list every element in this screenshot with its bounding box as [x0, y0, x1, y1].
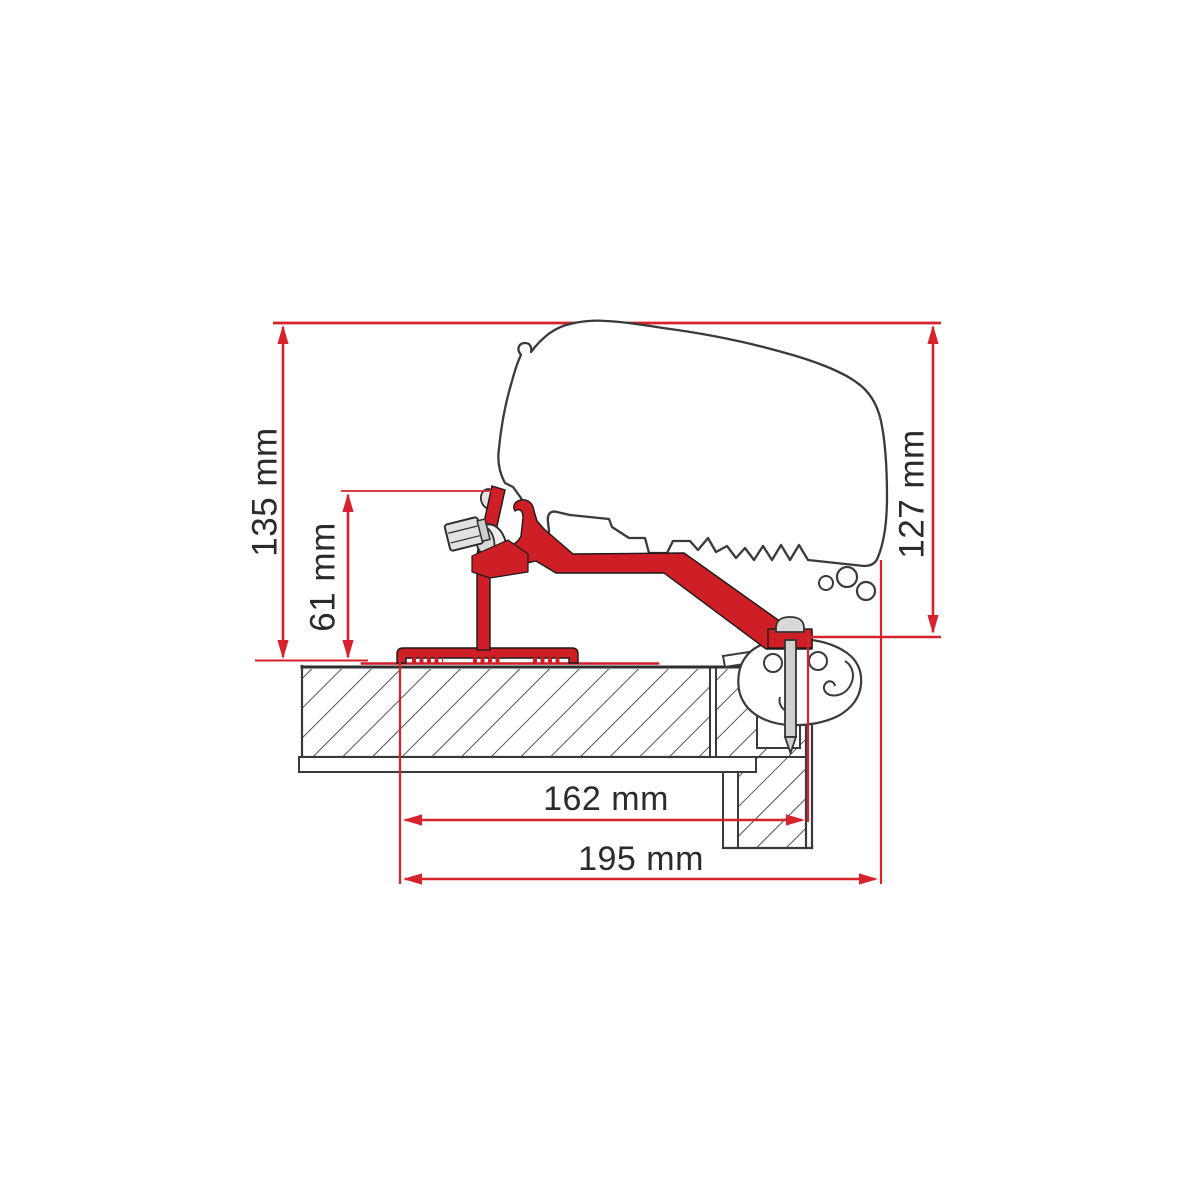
dim-162-label: 162 mm — [543, 780, 669, 818]
dim-135-label: 135 mm — [246, 427, 285, 556]
rail-channel-curl-1 — [837, 567, 857, 587]
screw-shaft — [785, 640, 796, 737]
dim-195-label: 195 mm — [578, 840, 704, 878]
screw-head — [776, 617, 804, 632]
rail-channel-curl-3 — [819, 576, 833, 590]
dim-127-label: 127 mm — [893, 429, 932, 558]
dim-61-label: 61 mm — [304, 522, 343, 631]
wall-lining-strip — [723, 772, 738, 848]
ceiling-strip — [299, 757, 756, 772]
bracket-post — [477, 566, 490, 650]
awning-adapter-dimension-drawing: 135 mm 61 mm 127 mm 162 mm 195 mm — [0, 0, 1200, 1200]
dimension-61: 61 mm — [304, 491, 495, 659]
dimension-135: 135 mm — [246, 325, 289, 659]
technical-diagram-canvas: 135 mm 61 mm 127 mm 162 mm 195 mm — [0, 0, 1200, 1200]
rail-channel-curl-2 — [857, 582, 875, 600]
